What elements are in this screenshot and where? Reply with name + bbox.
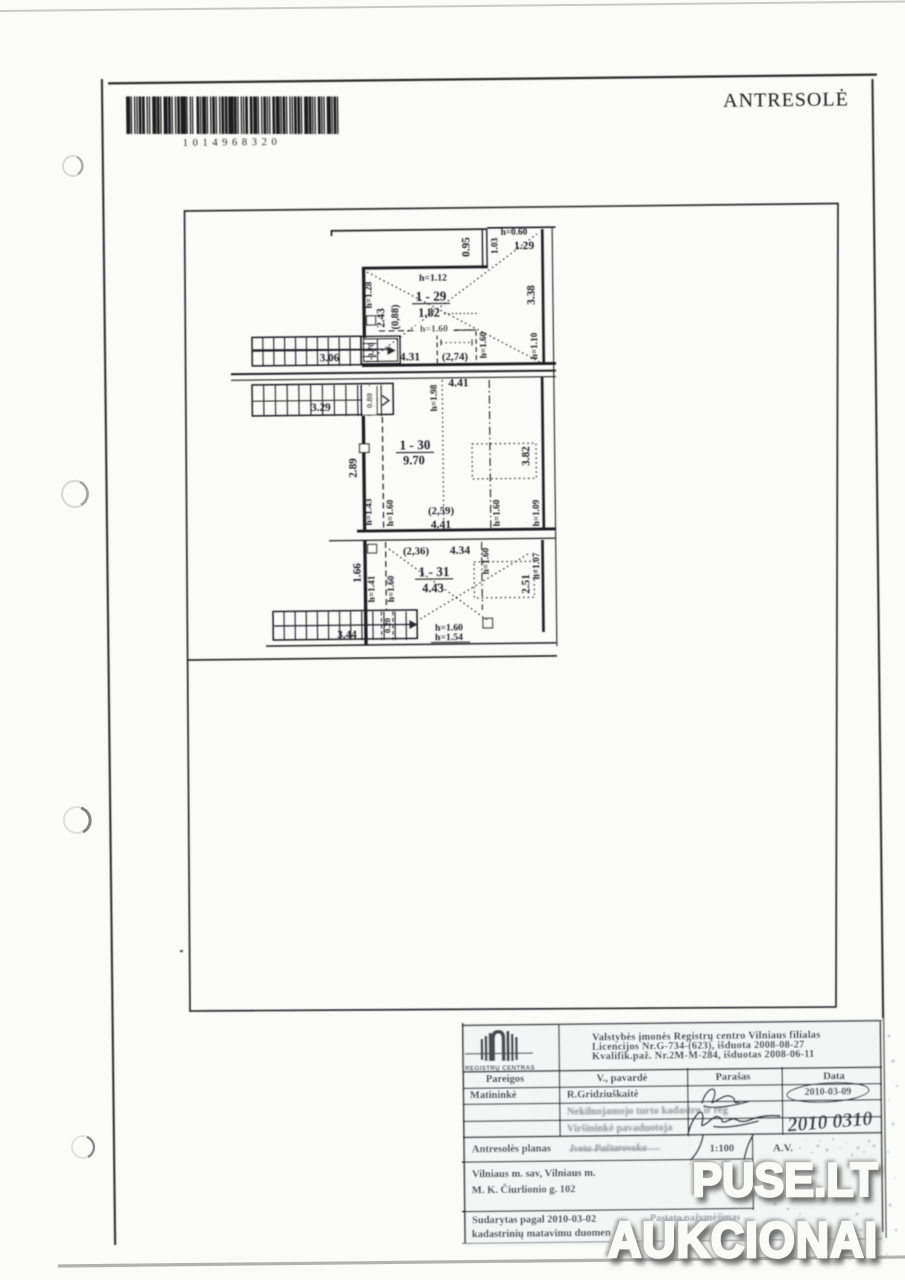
svg-text:(0,88): (0,88) — [390, 305, 401, 330]
svg-text:h=1.12: h=1.12 — [419, 272, 447, 283]
svg-text:Vilniaus m. sav, Vilniaus m.: Vilniaus m. sav, Vilniaus m. — [472, 1168, 596, 1180]
svg-text:2.43: 2.43 — [375, 308, 387, 328]
svg-text:1 - 30: 1 - 30 — [400, 437, 431, 452]
svg-text:0.95: 0.95 — [460, 237, 472, 257]
svg-text:3.38: 3.38 — [525, 285, 537, 305]
svg-text:(2,36): (2,36) — [403, 545, 430, 557]
svg-text:h=1.10: h=1.10 — [530, 332, 540, 359]
svg-text:Viršininkė pavaduotoja: Viršininkė pavaduotoja — [567, 1122, 673, 1134]
svg-text:M. K. Čiurlionio g. 102: M. K. Čiurlionio g. 102 — [472, 1182, 576, 1196]
svg-text:h=1.28: h=1.28 — [364, 281, 374, 308]
svg-text:h=1.98: h=1.98 — [430, 384, 440, 411]
svg-text:Pareigos: Pareigos — [486, 1074, 524, 1085]
svg-text:9.70: 9.70 — [403, 453, 425, 467]
svg-text:V., pavardė: V., pavardė — [596, 1073, 647, 1085]
svg-text:h=1.60: h=1.60 — [387, 575, 397, 602]
svg-text:0.80: 0.80 — [364, 393, 374, 408]
svg-text:0.70: 0.70 — [365, 342, 375, 357]
svg-text:REGISTRŲ CENTRAS: REGISTRŲ CENTRAS — [465, 1065, 535, 1073]
svg-text:h=1.07: h=1.07 — [532, 552, 542, 579]
svg-text:1 - 31: 1 - 31 — [419, 564, 450, 579]
svg-text:h=1.09: h=1.09 — [532, 499, 542, 526]
svg-text:PUSE.LT: PUSE.LT — [692, 1154, 877, 1206]
svg-text:Matininkė: Matininkė — [470, 1090, 517, 1102]
svg-text:2.51: 2.51 — [520, 574, 532, 594]
svg-text:0.20: 0.20 — [382, 618, 392, 633]
svg-text:h=1.54: h=1.54 — [435, 632, 463, 643]
svg-text:h=1.60: h=1.60 — [386, 499, 396, 526]
svg-text:1014968320: 1014968320 — [183, 137, 282, 149]
svg-text:h=1.60: h=1.60 — [492, 499, 502, 526]
svg-text:4.31: 4.31 — [400, 350, 421, 363]
svg-text:(2,74): (2,74) — [442, 351, 469, 363]
svg-text:4.43: 4.43 — [422, 581, 444, 595]
svg-text:3.29: 3.29 — [311, 402, 331, 414]
svg-text:AUKCIONAI: AUKCIONAI — [608, 1212, 878, 1268]
svg-text:1.03: 1.03 — [490, 237, 500, 254]
svg-text:1 - 29: 1 - 29 — [416, 288, 447, 303]
svg-text:4.34: 4.34 — [450, 544, 471, 557]
svg-text:h=1.41: h=1.41 — [367, 575, 377, 602]
svg-text:h=1.43: h=1.43 — [364, 498, 374, 525]
svg-text:1.29: 1.29 — [514, 239, 535, 252]
svg-text:h=1.60: h=1.60 — [481, 547, 491, 574]
svg-text:Iveta Paštarovska: Iveta Paštarovska — [569, 1143, 647, 1155]
svg-text:2.89: 2.89 — [347, 458, 359, 478]
svg-text:3.06: 3.06 — [320, 352, 340, 364]
svg-text:3.44: 3.44 — [337, 629, 357, 641]
svg-text:R.Gridziuškaitė: R.Gridziuškaitė — [567, 1089, 639, 1101]
svg-text:Parašas: Parašas — [715, 1072, 750, 1083]
svg-text:(2,59): (2,59) — [428, 505, 455, 517]
svg-text:1.66: 1.66 — [351, 563, 363, 583]
svg-text:4.41: 4.41 — [448, 376, 469, 389]
svg-text:1.82: 1.82 — [418, 305, 440, 319]
svg-text:kadastrinių matavimu duomen: kadastrinių matavimu duomen — [472, 1228, 611, 1241]
svg-text:h=0.60: h=0.60 — [501, 228, 528, 238]
svg-text:3.82: 3.82 — [520, 446, 532, 466]
svg-text:h=1.60: h=1.60 — [420, 323, 448, 334]
svg-text:Data: Data — [823, 1071, 845, 1082]
svg-text:4.41: 4.41 — [431, 518, 452, 531]
svg-text:Sudarytas pagal 2010-03-02: Sudarytas pagal 2010-03-02 — [472, 1214, 596, 1226]
svg-text:Antresolės planas: Antresolės planas — [472, 1144, 551, 1156]
svg-text:2010-03-09: 2010-03-09 — [805, 1087, 852, 1099]
svg-text:h=1.60: h=1.60 — [479, 331, 489, 358]
svg-text:ANTRESOLĖ: ANTRESOLĖ — [723, 87, 849, 111]
